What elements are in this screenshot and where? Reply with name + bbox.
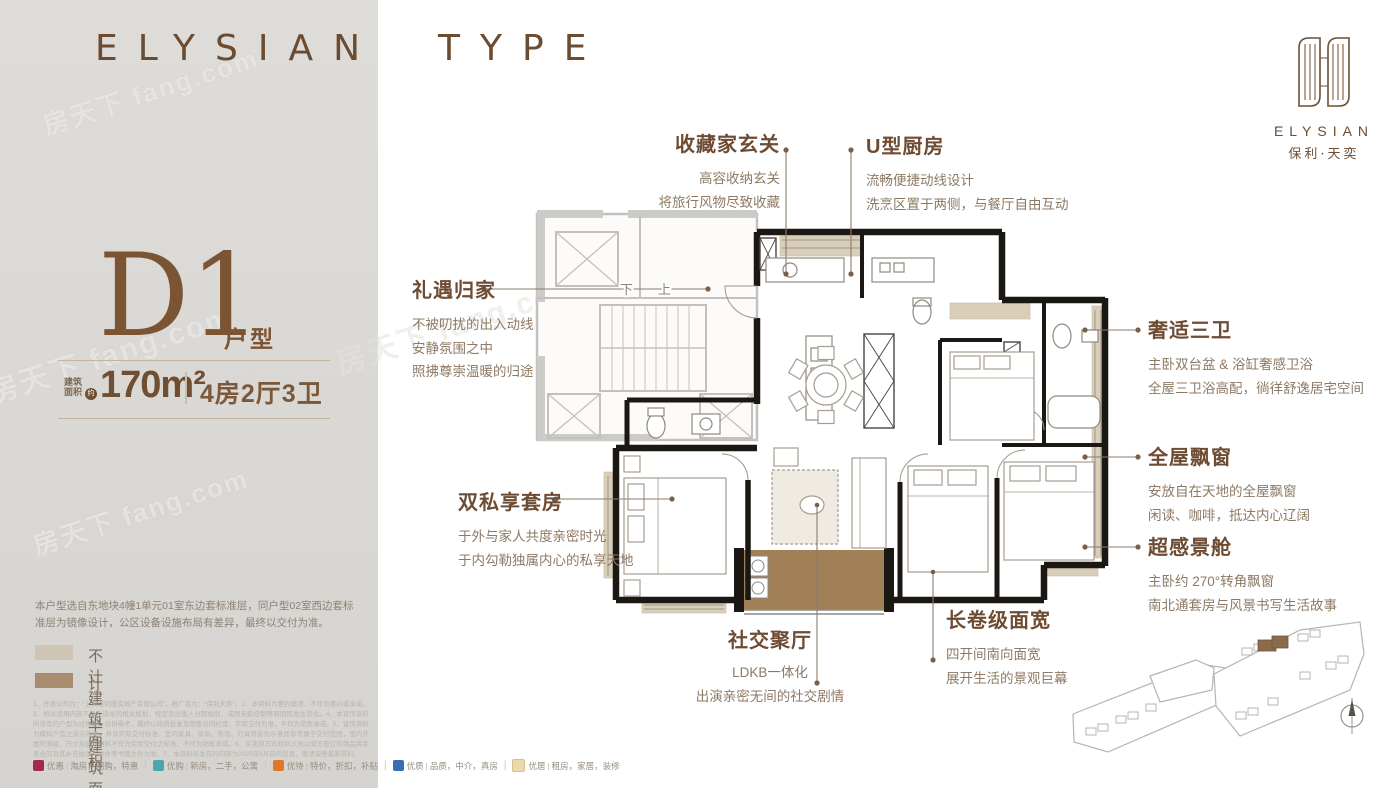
callout-body: LDKB一体化 出演亲密无间的社交剧情 bbox=[685, 661, 855, 708]
callout-entry: 礼遇归家 不被叨扰的出入动线 安静氛围之中 照拂尊崇温暖的归途 bbox=[412, 274, 534, 384]
badge-label: 优购 bbox=[167, 760, 184, 772]
doors bbox=[722, 286, 1044, 482]
callout-title: 收藏家玄关 bbox=[600, 128, 780, 157]
common-core bbox=[537, 210, 757, 441]
badge-sep: | bbox=[306, 761, 308, 771]
callout-line: 南北通套房与风景书写生活故事 bbox=[1148, 594, 1337, 618]
bay-windows bbox=[604, 236, 1104, 613]
callout-body: 高容收纳玄关 将旅行风物尽致收藏 bbox=[600, 167, 780, 214]
callout-body: 四开间南向面宽 展开生活的景观巨幕 bbox=[946, 643, 1068, 690]
callout-body: 不被叨扰的出入动线 安静氛围之中 照拂尊崇温暖的归途 bbox=[412, 313, 534, 384]
badge-desc: 品质，中介，真房 bbox=[430, 760, 498, 772]
badge-sep: | bbox=[186, 761, 188, 771]
callout-kitchen: U型厨房 流畅便捷动线设计 洗烹区置于两侧，与餐厅自由互动 bbox=[866, 130, 1069, 216]
badge-icon bbox=[273, 760, 284, 771]
badge-label: 优居 bbox=[528, 760, 545, 772]
callout-line: 展开生活的景观巨幕 bbox=[946, 667, 1068, 691]
footer-badge-3[interactable]: 优待|特价，折扣，补贴 bbox=[273, 760, 378, 772]
callout-line: 洗烹区置于两侧，与餐厅自由互动 bbox=[866, 193, 1069, 217]
footer-divider: | bbox=[504, 760, 507, 771]
stair-down-label: 下 bbox=[620, 282, 633, 297]
callout-foyer: 收藏家玄关 高容收纳玄关 将旅行风物尽致收藏 bbox=[600, 128, 780, 214]
badge-sep: | bbox=[547, 761, 549, 771]
footer-divider: | bbox=[264, 760, 267, 771]
callout-line: 照拂尊崇温暖的归途 bbox=[412, 360, 534, 384]
callout-body: 于外与家人共度亲密时光 于内勾勒独属内心的私享天地 bbox=[458, 525, 634, 572]
callout-line: 于外与家人共度亲密时光 bbox=[458, 525, 634, 549]
callout-title: 社交聚厅 bbox=[685, 624, 855, 653]
badge-desc: 新房，二手，公寓 bbox=[190, 760, 258, 772]
unit-code-label: 户型 bbox=[224, 320, 276, 354]
footer-divider: | bbox=[384, 760, 387, 771]
footer-divider: | bbox=[144, 760, 147, 771]
callout-line: 闲读、咖啡，抵达内心辽阔 bbox=[1148, 504, 1310, 528]
unit-rooms: 4房2厅3卫 bbox=[200, 374, 323, 410]
callout-line: 安放自在天地的全屋飘窗 bbox=[1148, 480, 1310, 504]
brand-name: ELYSIAN bbox=[1272, 123, 1376, 139]
footer-badge-5[interactable]: 优居|租房，家居，装修 bbox=[512, 759, 619, 772]
page-title: ELYSIANTYPE bbox=[95, 28, 606, 69]
legend-swatch-light bbox=[35, 645, 73, 660]
bedroom-furniture bbox=[624, 352, 1094, 596]
callout-body: 主卧约 270°转角飘窗 南北通套房与风景书写生活故事 bbox=[1148, 570, 1337, 617]
brand-cn-name: 保利·天奕 bbox=[1272, 143, 1376, 162]
callout-line: 主卧约 270°转角飘窗 bbox=[1148, 570, 1337, 594]
callout-line: 四开间南向面宽 bbox=[946, 643, 1068, 667]
callout-line: 出演亲密无间的社交剧情 bbox=[685, 685, 855, 709]
callout-title: 双私享套房 bbox=[458, 486, 634, 515]
floor-note: 本户型选自东地块4幢1单元01室东边套标准层，同户型02室西边套标准层为镜像设计… bbox=[35, 598, 357, 633]
badge-sep: | bbox=[66, 761, 68, 771]
badge-desc: 租房，家居，装修 bbox=[552, 760, 620, 772]
title-word-elysian: ELYSIAN bbox=[95, 28, 380, 69]
footer-badge-1[interactable]: 优惠|淘房，团购，特惠 bbox=[33, 760, 138, 772]
footer-badge-4[interactable]: 优质|品质，中介，真房 bbox=[393, 760, 498, 772]
badge-label: 优惠 bbox=[47, 760, 64, 772]
badge-sep: | bbox=[426, 761, 428, 771]
bathroom-fixtures bbox=[647, 324, 1100, 438]
divider-rule-bottom bbox=[58, 418, 330, 419]
callout-body: 流畅便捷动线设计 洗烹区置于两侧，与餐厅自由互动 bbox=[866, 169, 1069, 216]
balcony bbox=[734, 548, 894, 614]
callout-body: 主卧双台盆 & 浴缸奢感卫浴 全屋三卫浴高配，徜徉舒逸居宅空间 bbox=[1148, 353, 1364, 400]
footer-badges: 优惠|淘房，团购，特惠 | 优购|新房，二手，公寓 | 优待|特价，折扣，补贴 … bbox=[33, 759, 620, 772]
area-prefix-line2: 面积 bbox=[64, 387, 82, 397]
divider-rule-top bbox=[58, 360, 330, 361]
cabinets bbox=[760, 238, 1020, 428]
kitchen-fixtures bbox=[766, 258, 934, 420]
badge-icon bbox=[393, 760, 404, 771]
brand-logo: ELYSIAN 保利·天奕 bbox=[1272, 26, 1376, 162]
highlighted-building bbox=[1258, 636, 1288, 651]
callout-line: 主卧双台盆 & 浴缸奢感卫浴 bbox=[1148, 353, 1364, 377]
callout-cabin: 超感景舱 主卧约 270°转角飘窗 南北通套房与风景书写生活故事 bbox=[1148, 531, 1337, 617]
stair-direction-labels: 下 上 bbox=[620, 282, 671, 297]
brand-emblem-icon bbox=[1272, 26, 1376, 114]
callout-width: 长卷级面宽 四开间南向面宽 展开生活的景观巨幕 bbox=[946, 604, 1068, 690]
legal-fine-print: 1、开发公司为：“上海保利晟房地产有限公司”，推广名为：“保利天奕”。2、本资料… bbox=[33, 700, 369, 760]
callout-title: 超感景舱 bbox=[1148, 531, 1337, 560]
callout-title: 长卷级面宽 bbox=[946, 604, 1068, 633]
badge-icon bbox=[33, 760, 44, 771]
area-approx-badge: 约 bbox=[85, 388, 97, 400]
callout-title: U型厨房 bbox=[866, 130, 1069, 159]
badge-desc: 特价，折扣，补贴 bbox=[310, 760, 378, 772]
footer-badge-2[interactable]: 优购|新房，二手，公寓 bbox=[153, 760, 258, 772]
callout-suite: 双私享套房 于外与家人共度亲密时光 于内勾勒独属内心的私享天地 bbox=[458, 486, 634, 572]
unit-walls bbox=[616, 232, 1105, 600]
dining-table bbox=[789, 347, 864, 424]
area-divider bbox=[185, 372, 187, 404]
legend-swatch-dark bbox=[35, 673, 73, 688]
callout-title: 奢适三卫 bbox=[1148, 314, 1364, 343]
badge-icon bbox=[153, 760, 164, 771]
area-value: 170m² bbox=[100, 364, 205, 407]
callout-line: 于内勾勒独属内心的私享天地 bbox=[458, 549, 634, 573]
badge-icon bbox=[512, 759, 525, 772]
callout-line: 不被叨扰的出入动线 bbox=[412, 313, 534, 337]
callout-title: 全屋飘窗 bbox=[1148, 441, 1310, 470]
callout-line: 全屋三卫浴高配，徜徉舒逸居宅空间 bbox=[1148, 377, 1364, 401]
callout-living: 社交聚厅 LDKB一体化 出演亲密无间的社交剧情 bbox=[685, 624, 855, 708]
area-prefix-line1: 建筑 bbox=[64, 377, 82, 387]
callout-line: 将旅行风物尽致收藏 bbox=[600, 191, 780, 215]
callout-line: 高容收纳玄关 bbox=[600, 167, 780, 191]
callout-line: 流畅便捷动线设计 bbox=[866, 169, 1069, 193]
poster: 房天下 fang.com 房天下 fang.com 房天下 fang.com 房… bbox=[0, 0, 1400, 788]
callout-bay-window: 全屋飘窗 安放自在天地的全屋飘窗 闲读、咖啡，抵达内心辽阔 bbox=[1148, 441, 1310, 527]
callout-line: LDKB一体化 bbox=[685, 661, 855, 685]
badge-label: 优待 bbox=[287, 760, 304, 772]
callout-baths: 奢适三卫 主卧双台盆 & 浴缸奢感卫浴 全屋三卫浴高配，徜徉舒逸居宅空间 bbox=[1148, 314, 1364, 400]
stair-up-label: 上 bbox=[658, 282, 671, 297]
callout-body: 安放自在天地的全屋飘窗 闲读、咖啡，抵达内心辽阔 bbox=[1148, 480, 1310, 527]
compass-icon bbox=[1341, 698, 1363, 734]
area-prefix-label: 建筑 面积 bbox=[64, 377, 82, 398]
badge-desc: 淘房，团购，特惠 bbox=[70, 760, 138, 772]
site-plan bbox=[1073, 622, 1364, 752]
badge-label: 优质 bbox=[407, 760, 424, 772]
callout-title: 礼遇归家 bbox=[412, 274, 534, 303]
title-word-type: TYPE bbox=[438, 28, 606, 69]
callout-line: 安静氛围之中 bbox=[412, 337, 534, 361]
living-furniture bbox=[772, 448, 886, 548]
